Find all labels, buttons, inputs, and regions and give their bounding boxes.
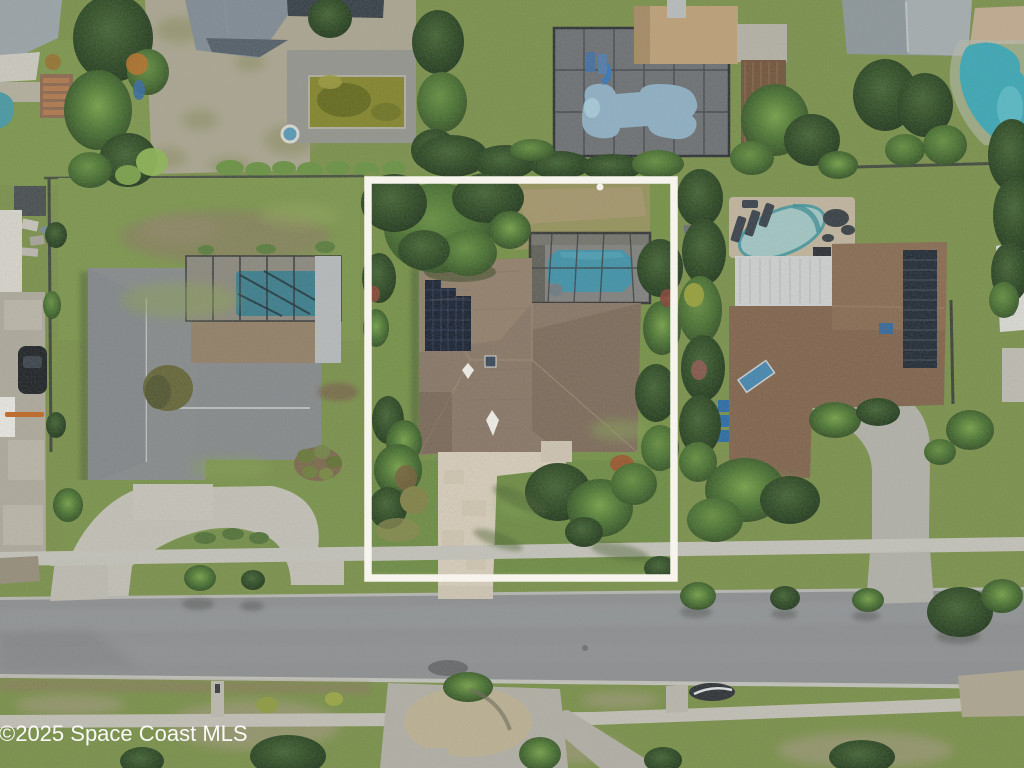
svg-text:©2025 Space Coast MLS: ©2025 Space Coast MLS — [0, 721, 248, 746]
